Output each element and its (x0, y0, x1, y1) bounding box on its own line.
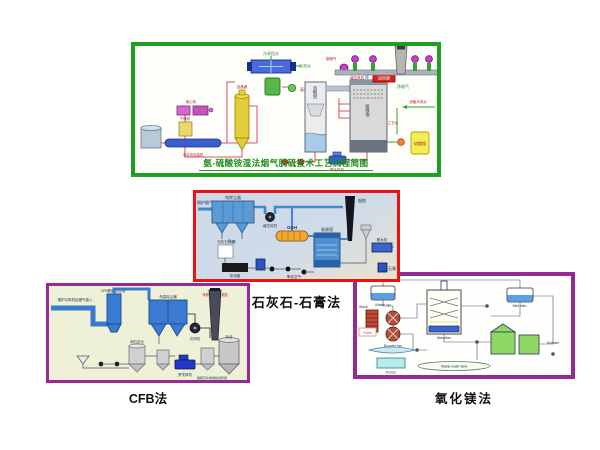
oxidizer-label: Oxidizer (547, 341, 561, 345)
panel-ammonia: 半自动包装机 干燥机 离心机 结晶器 (131, 42, 441, 177)
process-water-label: 工艺水 (388, 120, 399, 125)
cooling-water-label: 冷却水 (299, 63, 311, 69)
panel-mgo: Make up Stack Fuels Booster fan (353, 272, 575, 379)
slurry-tank-icon (222, 263, 248, 272)
fan-hub-icon (194, 327, 197, 330)
pump-icon (475, 340, 479, 344)
inlet-pipe-icon (51, 308, 109, 324)
absorber-label: Absorber (437, 336, 452, 340)
cfb-reactor-icon (107, 294, 121, 332)
dewaterer-icon (372, 243, 392, 252)
water-tank-icon (256, 259, 265, 270)
interconnect-duct-icon (326, 86, 350, 91)
stack-icon (345, 196, 355, 241)
ponds-tank-icon (377, 358, 405, 368)
fan-hub-icon (269, 216, 272, 219)
ggh-label: GGH (287, 225, 297, 230)
mist-tank-icon (507, 288, 533, 302)
packer-conveyor-icon (165, 139, 221, 147)
vacuum-pump-icon (288, 84, 295, 91)
product-silo-icon (141, 125, 161, 148)
ammonium-sulfate-label: 硫酸铵 (414, 140, 426, 146)
oxidation-air-label: 氧化空气 (287, 274, 301, 279)
bag-filter-icon (149, 300, 187, 336)
esp-label: 电除尘器 (225, 194, 241, 200)
esp-icon (212, 201, 254, 233)
absorber-label: 吸收塔 (365, 104, 371, 119)
id-fan-label: 引风机 (190, 336, 201, 341)
pump-icon (115, 362, 120, 367)
concentrator-label: 浓缩塔 (312, 85, 318, 101)
bag-filter-label: 布袋除尘器 (159, 294, 177, 299)
gypsum-label: 石膏 (388, 265, 396, 271)
small-silo-icon (157, 350, 169, 370)
product-pump-icon (398, 139, 405, 146)
cooling-return-label: 冷却回水 (263, 50, 279, 56)
oxidizer-tanks-icon (491, 324, 539, 354)
mgo-flow-diagram: Make up Stack Fuels Booster fan (357, 276, 571, 375)
lime-silo-label: 消石灰仓 (130, 339, 144, 344)
roots-blower-icon (175, 355, 195, 369)
stack-icon (395, 46, 407, 74)
limestone-flow-diagram: 锅炉烟气 电除尘器 飞灰 增压风机 (196, 193, 397, 279)
crystallizer-label: 结晶器 (237, 84, 248, 89)
mist-label: Mist elim. (513, 304, 528, 308)
dryer-icon (179, 122, 192, 136)
dryer-label: 干燥机 (180, 116, 191, 121)
absorber-icon (427, 281, 461, 334)
waste-water-label: Waste water tank (441, 365, 467, 369)
absorber-icon (314, 233, 340, 267)
ash-out-label: 脱硫灰外排或综合利用 (197, 375, 227, 380)
centrifuge-label: 离心机 (186, 99, 197, 104)
ammonia-diagram-title: 氨-硫酸铵湿法烟气脱硫技术工艺流程简图 (199, 157, 372, 171)
clarifier-pond-icon (369, 347, 415, 353)
hydrocyclone-icon (361, 225, 371, 239)
inlet-label: 锅炉引风机后烟气接入 (58, 297, 93, 302)
caption-limestone: 石灰石-石膏法 (193, 292, 400, 311)
booster-fan-label: 增压风机 (263, 223, 277, 228)
condenser-icon (247, 60, 296, 73)
lime-silo-icon (129, 344, 145, 372)
panel-limestone: 锅炉烟气 电除尘器 飞灰 增压风机 (193, 190, 400, 282)
slurry-tank-label: 浆液箱 (230, 273, 241, 278)
stack-label: 烟囱 (358, 197, 366, 203)
overhead-duct-icon (335, 70, 437, 75)
booster-fan-label: 增压风机 (350, 75, 364, 80)
boiler-gas-label: 锅炉烟气 (197, 199, 213, 205)
dewater-label: 脱水机 (377, 237, 388, 242)
pump-icon (270, 267, 275, 272)
pump-icon (286, 267, 291, 272)
gypsum-icon (378, 263, 387, 272)
ggh-icon (276, 231, 308, 241)
raw-gas-label: 原烟气 (326, 56, 337, 61)
flush-water-label: 设备冲洗水 (409, 99, 427, 104)
caption-mgo: 氧化镁法 (353, 388, 575, 407)
absorber-label: 吸收塔 (321, 226, 333, 232)
heater-label: 加热器 (378, 75, 390, 81)
small-silo-icon (201, 348, 214, 370)
evaporator-icon (265, 78, 280, 95)
limestone-silo-icon (218, 245, 233, 258)
roots-blower-label: 罗茨风机 (178, 372, 192, 377)
fuels-label: Fuels (363, 331, 372, 335)
ash-silo-label: 灰仓 (226, 334, 233, 339)
roof-fans-icon (352, 56, 433, 71)
ash-silo-icon (219, 338, 239, 374)
pump-icon (551, 352, 555, 356)
limestone-silo-label: 石灰石粉仓 (217, 239, 235, 244)
slurry-lines (225, 239, 394, 272)
centrifuge-icon (177, 106, 213, 115)
caption-cfb: CFB法 (46, 388, 250, 407)
pump-icon (302, 270, 307, 275)
crystallizer-column-icon (235, 90, 249, 150)
ponds-label: Ponds (386, 371, 396, 375)
clean-gas-label: 净烟气 (397, 83, 409, 89)
pump-icon (485, 304, 489, 308)
feeder-hopper-icon (77, 356, 89, 364)
flush-water-arrow-icon (402, 105, 407, 109)
pump-icon (99, 362, 104, 367)
